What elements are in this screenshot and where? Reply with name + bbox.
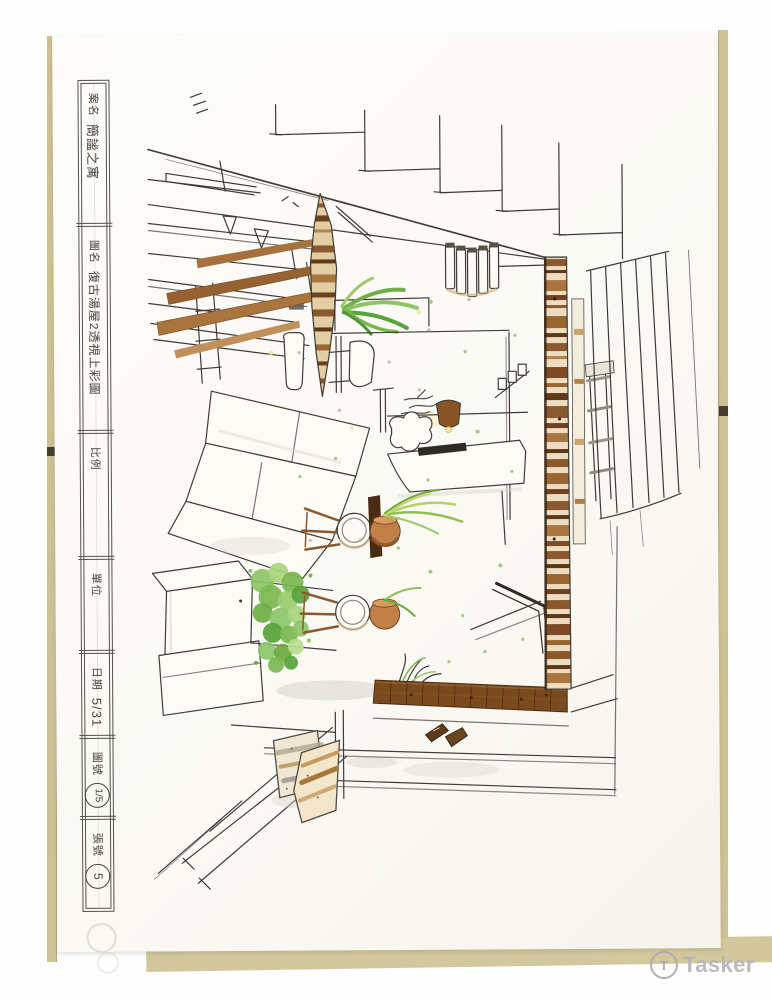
field-drawing-name: 圖名 復古湯屋2透視上彩圖 bbox=[81, 231, 108, 430]
field-label: 日期 bbox=[89, 667, 105, 691]
title-block-divider bbox=[78, 556, 114, 560]
low-table bbox=[388, 440, 527, 545]
field-label: 比例 bbox=[88, 447, 104, 471]
field-label: 圖號 bbox=[90, 752, 106, 776]
watermark: T Tasker bbox=[650, 951, 755, 979]
watermark-text: Tasker bbox=[683, 952, 755, 978]
field-unit: 單位 bbox=[83, 564, 110, 650]
wood-slat-column bbox=[543, 257, 573, 689]
paper-sheet: 案名 簡謐之寓 圖名 復古湯屋2透視上彩圖 比例 單位 日期 5/31 圖號 1… bbox=[0, 0, 772, 1000]
title-block-divider bbox=[76, 223, 112, 227]
terracotta-pot-1 bbox=[368, 490, 462, 559]
photo-of-sketch: 案名 簡謐之寓 圖名 復古湯屋2透視上彩圖 比例 單位 日期 5/31 圖號 1… bbox=[0, 0, 772, 1000]
tasker-logo-icon: T bbox=[650, 951, 678, 979]
sheet-number-circle: 5 bbox=[86, 864, 111, 889]
window-corner-frame bbox=[471, 583, 549, 653]
field-sheet-number: 張號 5 bbox=[85, 824, 112, 908]
title-block-divider bbox=[79, 650, 115, 654]
field-value: 簡謐之寓 bbox=[84, 124, 103, 180]
slippers bbox=[425, 724, 467, 747]
field-label: 張號 bbox=[90, 833, 106, 857]
title-block-divider bbox=[79, 735, 115, 739]
field-label: 案名 bbox=[86, 93, 102, 117]
pillows bbox=[271, 730, 340, 822]
slat-pendant-lamp bbox=[445, 242, 543, 297]
curtain bbox=[586, 250, 700, 555]
field-scale: 比例 bbox=[83, 438, 110, 556]
title-block-divider bbox=[80, 816, 116, 820]
field-label: 單位 bbox=[88, 573, 104, 597]
field-date: 日期 5/31 bbox=[84, 658, 110, 735]
rafter-lines bbox=[148, 92, 374, 383]
wood-floor-strip bbox=[373, 675, 617, 727]
embossed-circle-mark bbox=[87, 923, 117, 953]
field-value: 復古湯屋2透視上彩圖 bbox=[86, 271, 104, 396]
stool-2 bbox=[301, 592, 370, 632]
field-value: 5/31 bbox=[90, 698, 105, 727]
drawing-number-circle: 1/5 bbox=[85, 783, 110, 808]
field-drawing-number: 圖號 1/5 bbox=[84, 743, 110, 816]
embossed-circle-mark bbox=[97, 952, 119, 974]
dry-branch-sketch bbox=[401, 390, 436, 414]
ceiling-diagonal-lines bbox=[148, 147, 566, 266]
interior-perspective-drawing bbox=[0, 0, 772, 1000]
terracotta-pot-2 bbox=[370, 588, 421, 629]
field-label: 圖名 bbox=[86, 240, 102, 264]
title-block-divider bbox=[78, 430, 114, 434]
field-project-name: 案名 簡謐之寓 bbox=[80, 84, 107, 223]
